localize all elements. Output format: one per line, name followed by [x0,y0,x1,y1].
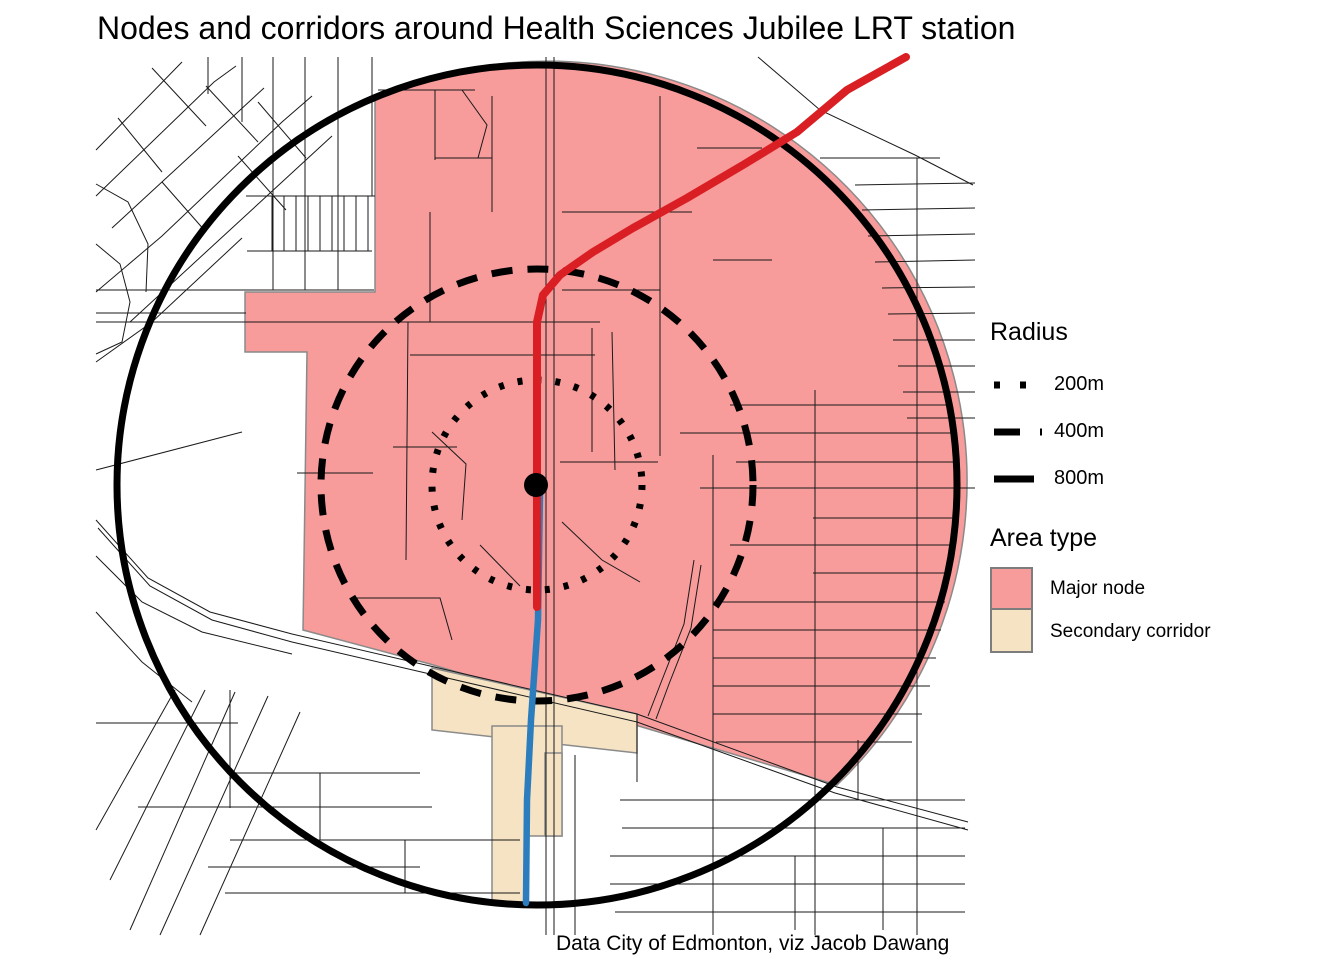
dashed-line-icon [990,427,1042,437]
street [96,62,182,150]
legend-radius-items: 200m 400m 800m [990,361,1340,502]
legend-item-secondary-corridor: Secondary corridor [990,610,1340,653]
street [96,66,236,196]
legend-item-400m: 400m [990,408,1340,455]
legend-area-type-title: Area type [990,524,1340,553]
street [855,183,975,185]
major-node-swatch [990,567,1033,610]
data-source-caption: Data City of Edmonton, viz Jacob Dawang [556,932,949,956]
page-title: Nodes and corridors around Health Scienc… [97,10,1015,47]
legend: Radius 200m 400m 800m Area type [990,318,1340,653]
legend-label-secondary-corridor: Secondary corridor [1050,621,1211,643]
map-visualization: Nodes and corridors around Health Scienc… [0,0,1344,960]
dotted-line-icon [990,380,1042,390]
street [118,118,162,172]
street [96,690,175,830]
street [130,692,235,930]
street [96,184,148,292]
station-point [524,473,548,497]
legend-area-type-items: Major node Secondary corridor [990,567,1340,653]
street [96,96,312,292]
legend-item-200m: 200m [990,361,1340,408]
secondary-corridor-swatch [990,610,1033,653]
street [862,208,975,210]
legend-label-800m: 800m [1054,467,1104,490]
legend-radius-title: Radius [990,318,1340,347]
legend-label-200m: 200m [1054,373,1104,396]
legend-item-major-node: Major node [990,567,1340,610]
street [162,182,206,232]
legend-label-major-node: Major node [1050,578,1145,600]
legend-item-800m: 800m [990,455,1340,502]
street [96,244,130,354]
legend-label-400m: 400m [1054,420,1104,443]
major-node-area [245,61,967,785]
area-layer [245,61,967,903]
street [160,696,268,935]
solid-line-icon [990,474,1042,484]
